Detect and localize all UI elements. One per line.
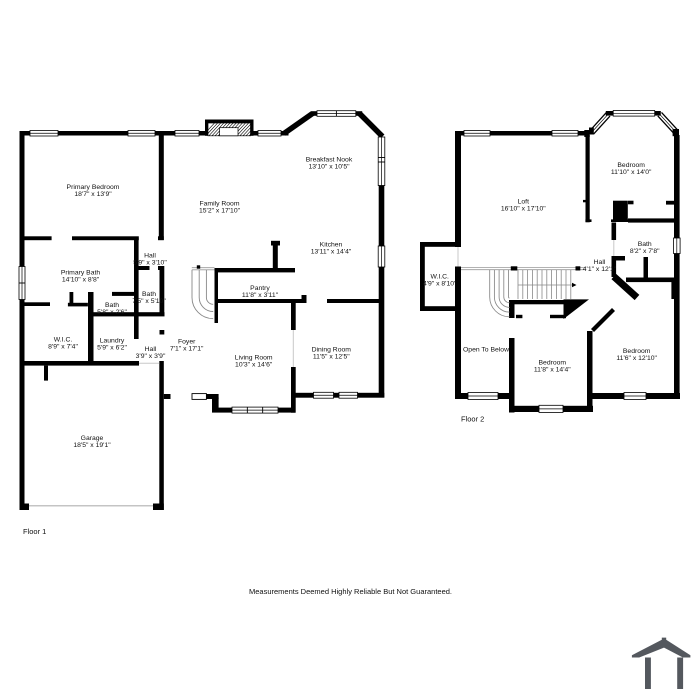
svg-text:18'7" x 13'9": 18'7" x 13'9"	[74, 191, 112, 198]
svg-text:15'2" x 17'10": 15'2" x 17'10"	[199, 207, 241, 214]
svg-text:8'9" x 7'4": 8'9" x 7'4"	[48, 343, 78, 350]
svg-text:10'3" x 14'6": 10'3" x 14'6"	[235, 361, 273, 368]
svg-text:16'10" x 17'10": 16'10" x 17'10"	[501, 205, 546, 212]
svg-text:7'5" x 5'10": 7'5" x 5'10"	[132, 298, 166, 305]
svg-text:11'5" x 12'5": 11'5" x 12'5"	[313, 353, 350, 360]
svg-text:5'8" x 2'6": 5'8" x 2'6"	[97, 309, 127, 316]
svg-text:Measurements Deemed Highly Rel: Measurements Deemed Highly Reliable But …	[249, 587, 452, 596]
svg-text:18'5" x 19'1": 18'5" x 19'1"	[73, 442, 111, 449]
svg-text:5'9" x 3'10": 5'9" x 3'10"	[133, 259, 167, 266]
svg-text:11'8" x 3'11": 11'8" x 3'11"	[242, 292, 279, 299]
svg-text:13'10" x 10'5": 13'10" x 10'5"	[308, 163, 350, 170]
svg-text:Floor 2: Floor 2	[461, 415, 484, 424]
svg-text:13'11" x 14'4": 13'11" x 14'4"	[311, 248, 352, 255]
svg-text:Floor 1: Floor 1	[23, 527, 46, 536]
svg-text:7'1" x 17'1": 7'1" x 17'1"	[170, 345, 204, 352]
svg-text:11'8" x 14'4": 11'8" x 14'4"	[534, 366, 571, 373]
svg-text:Open To Below: Open To Below	[463, 347, 509, 354]
svg-text:11'6" x 12'10": 11'6" x 12'10"	[616, 355, 657, 362]
svg-text:3'9" x 3'9": 3'9" x 3'9"	[136, 353, 166, 360]
svg-text:14'10" x 8'8": 14'10" x 8'8"	[62, 276, 100, 283]
svg-text:4'9" x 8'10": 4'9" x 8'10"	[423, 280, 457, 287]
svg-text:11'10" x 14'0": 11'10" x 14'0"	[611, 169, 652, 176]
svg-text:8'2" x 7'8": 8'2" x 7'8"	[630, 248, 660, 255]
svg-text:4'1" x 12'1": 4'1" x 12'1"	[583, 266, 617, 273]
svg-text:5'9" x 6'2": 5'9" x 6'2"	[97, 344, 127, 351]
